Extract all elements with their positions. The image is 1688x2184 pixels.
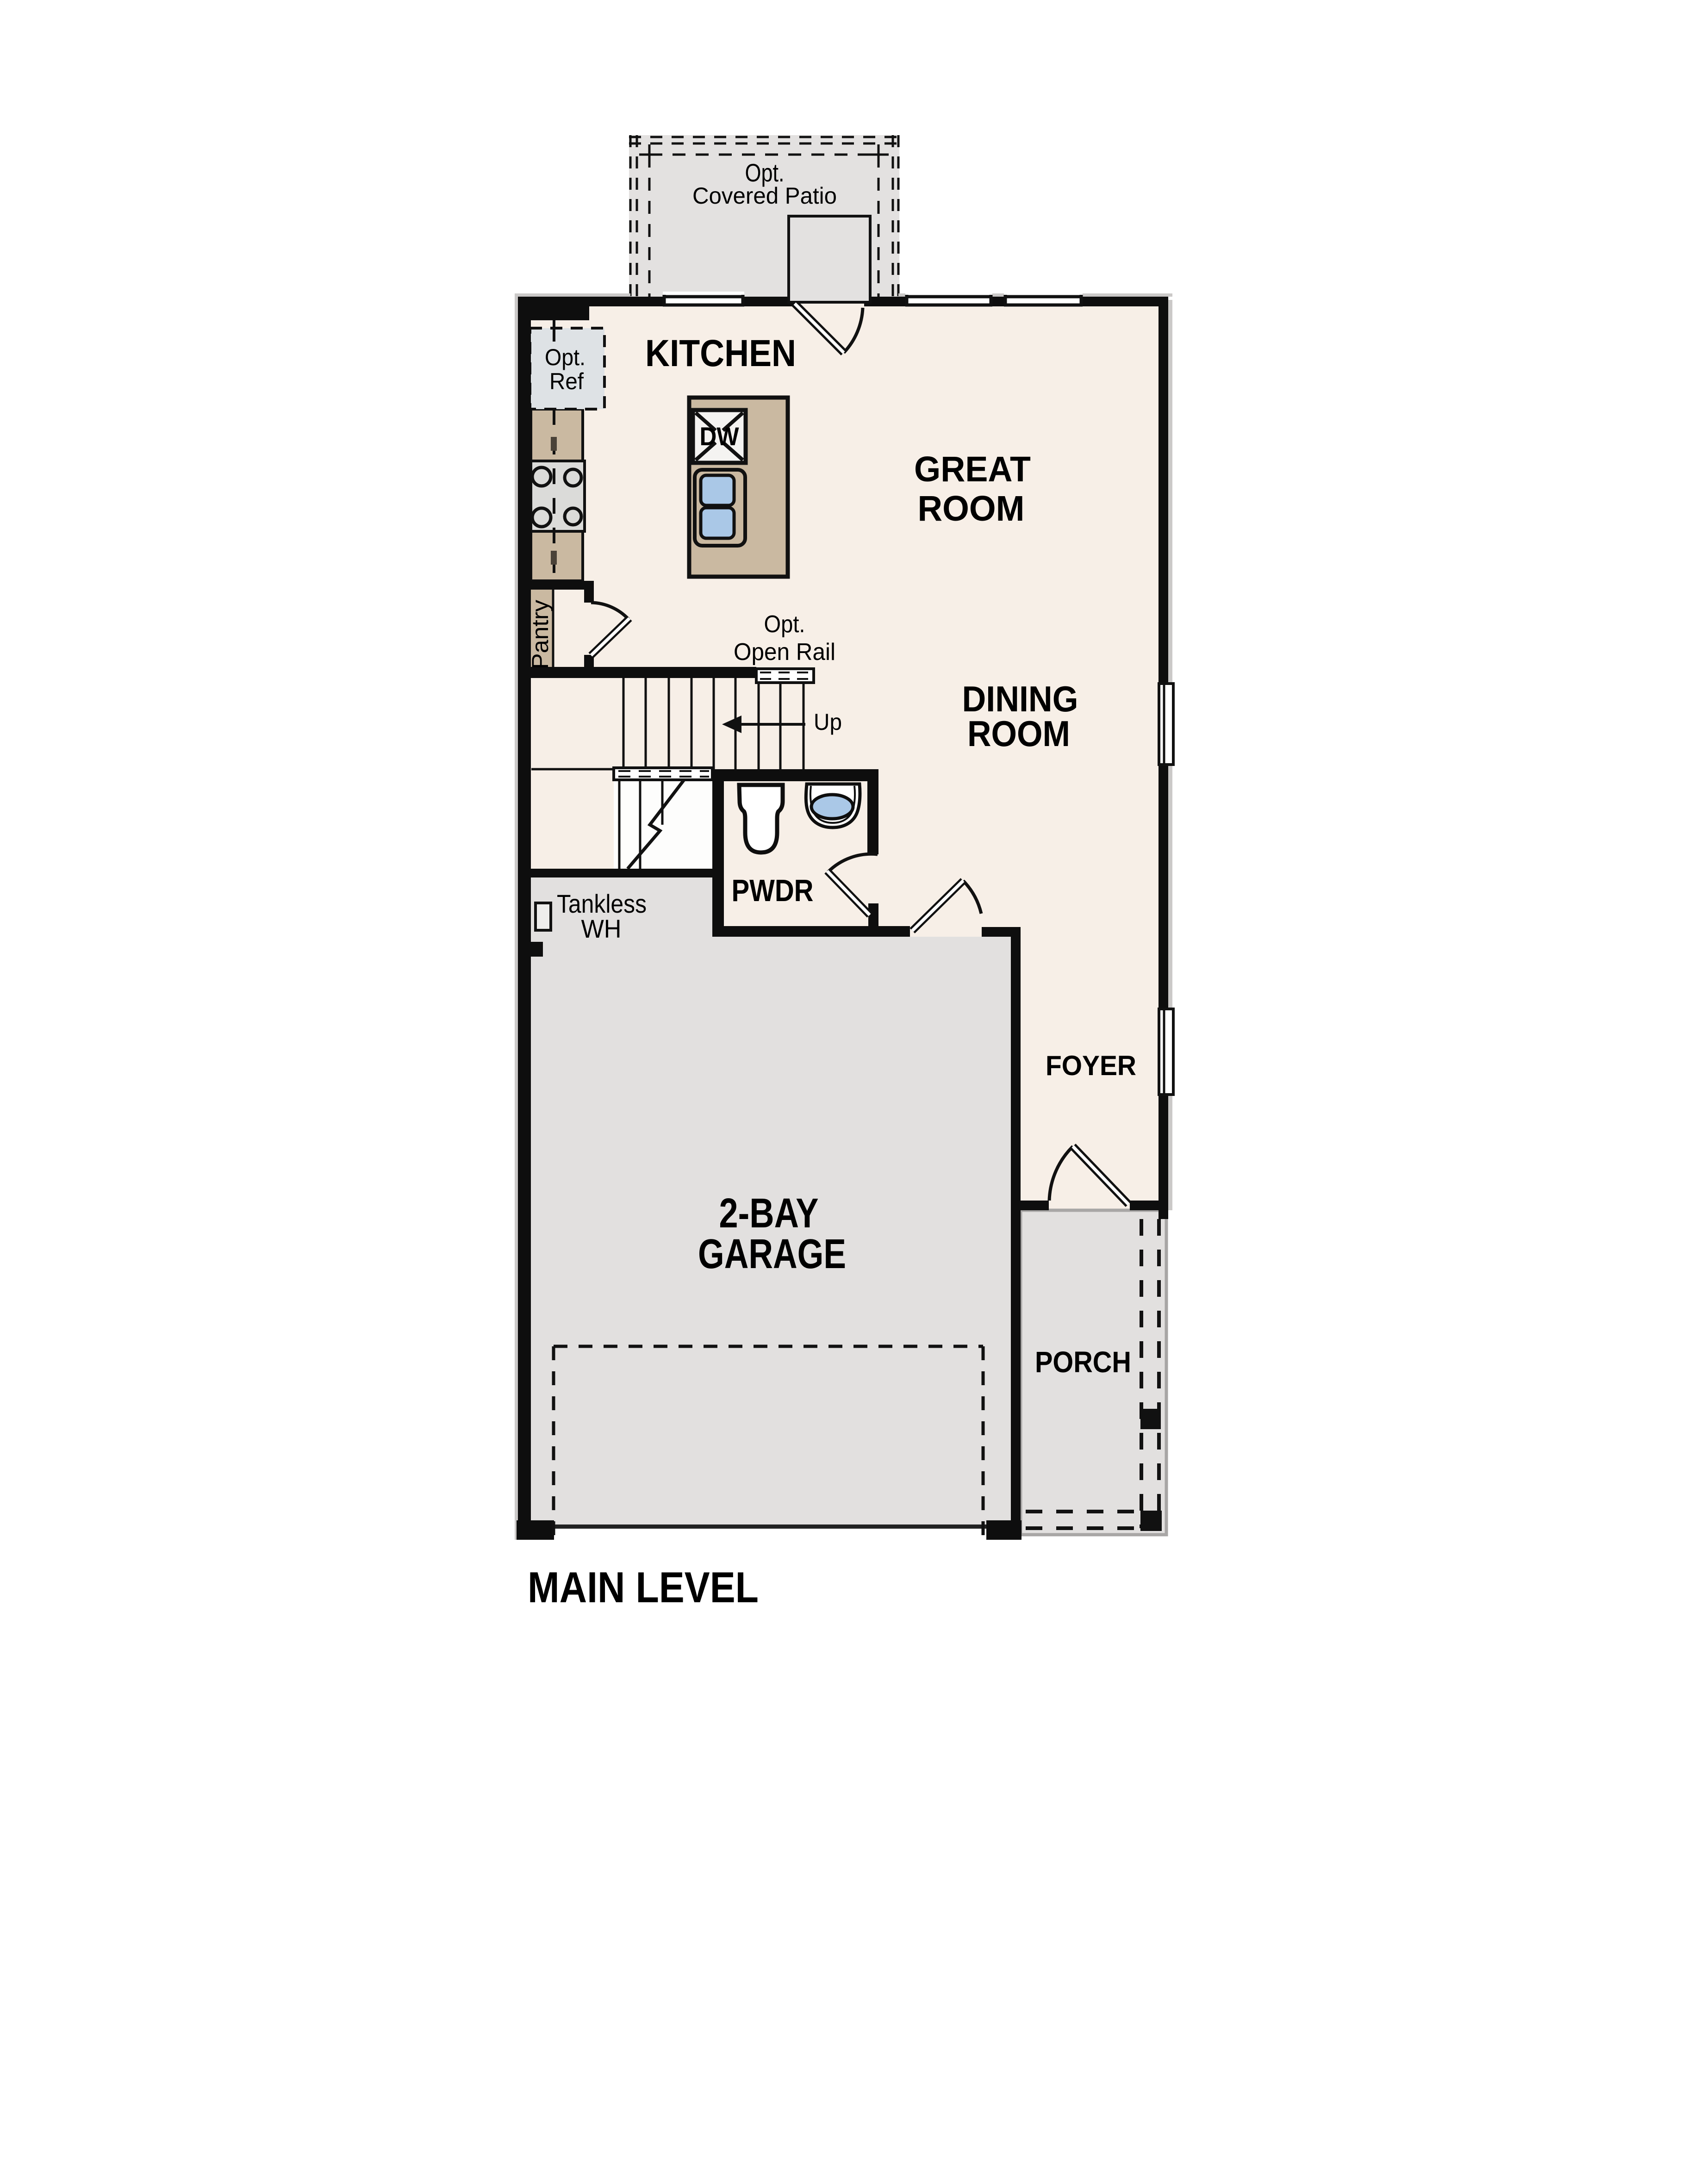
svg-text:Covered Patio: Covered Patio bbox=[692, 183, 837, 209]
svg-text:GREAT: GREAT bbox=[914, 449, 1031, 489]
svg-text:KITCHEN: KITCHEN bbox=[645, 332, 796, 374]
svg-text:2-BAY: 2-BAY bbox=[719, 1190, 819, 1237]
svg-text:ROOM: ROOM bbox=[967, 713, 1070, 754]
svg-text:Opt.: Opt. bbox=[545, 344, 586, 370]
svg-text:PORCH: PORCH bbox=[1035, 1345, 1131, 1379]
svg-text:Ref: Ref bbox=[549, 368, 584, 394]
svg-text:PWDR: PWDR bbox=[732, 873, 814, 908]
svg-text:ROOM: ROOM bbox=[918, 489, 1025, 529]
svg-text:GARAGE: GARAGE bbox=[698, 1231, 846, 1277]
svg-text:WH: WH bbox=[581, 914, 622, 943]
svg-text:Open Rail: Open Rail bbox=[734, 639, 835, 666]
svg-text:Pantry: Pantry bbox=[527, 600, 553, 669]
svg-text:Opt.: Opt. bbox=[764, 611, 805, 638]
svg-text:MAIN LEVEL: MAIN LEVEL bbox=[528, 1563, 759, 1612]
svg-text:FOYER: FOYER bbox=[1046, 1050, 1136, 1081]
svg-text:Up: Up bbox=[814, 709, 842, 735]
svg-text:DW: DW bbox=[700, 422, 739, 451]
